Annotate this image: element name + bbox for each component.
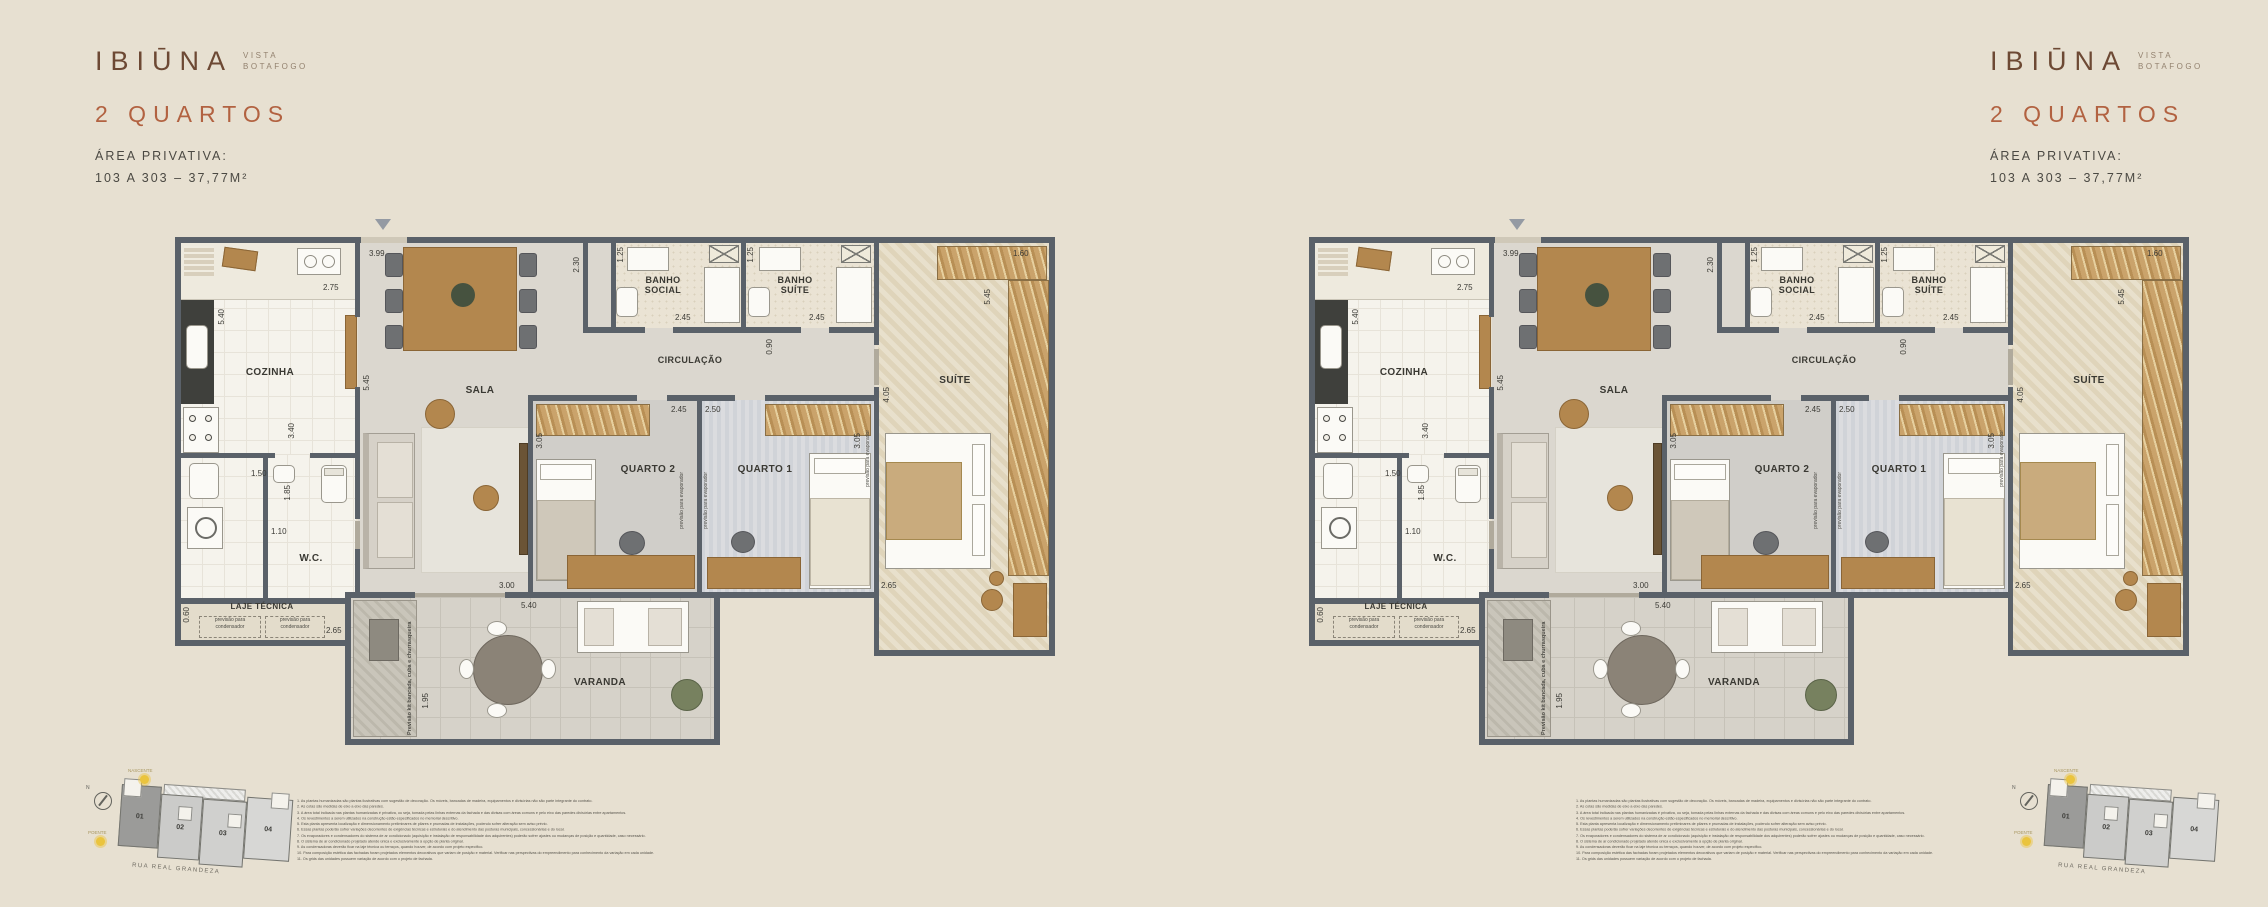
dining-chair — [1653, 325, 1671, 349]
suite-closet-top — [2071, 246, 2181, 280]
dim-var-w: 5.40 — [1655, 601, 1671, 610]
keymap-unit-03: 03 — [2125, 799, 2173, 868]
sofa-cushion — [377, 502, 413, 558]
dining-chair — [519, 289, 537, 313]
wall — [697, 401, 702, 592]
suite-dresser — [1013, 583, 1047, 637]
room-label-suite: SUÍTE — [2049, 375, 2129, 387]
wall — [355, 453, 360, 519]
dim-q1-top: 2.50 — [705, 405, 721, 414]
desk-chair — [731, 531, 755, 553]
ibiuna-logo: IBIŪNA — [1990, 46, 2128, 77]
room-label-banho-suite: BANHO SUÍTE — [769, 275, 821, 296]
dim-suite-h: 4.05 — [2016, 387, 2025, 403]
burner — [189, 434, 196, 441]
varanda-chair — [1621, 621, 1641, 636]
note-evaporador: previsão para evaporador — [679, 455, 691, 529]
burner — [1339, 415, 1346, 422]
dim-coz-top: 2.75 — [1457, 283, 1473, 292]
burner — [205, 434, 212, 441]
sun-top-label: NASCENTE — [128, 768, 153, 773]
sliding-door — [1549, 593, 1639, 597]
dim-coz-left: 5.40 — [217, 309, 226, 325]
varanda-chair — [1621, 703, 1641, 718]
dim-q2-side: 3.05 — [535, 433, 544, 449]
daybed — [577, 601, 689, 653]
pillow — [972, 504, 985, 556]
wardrobe — [536, 404, 650, 436]
toilet — [1750, 287, 1772, 317]
ventilation-shaft — [1843, 245, 1873, 263]
tv-console — [519, 443, 528, 555]
dim-hall: 2.30 — [572, 257, 581, 273]
dim-sala-bottom: 3.00 — [1633, 581, 1649, 590]
varanda-chair — [541, 659, 556, 679]
dim-closet-top: 1.60 — [2147, 249, 2163, 258]
dim-banho-suite-w: 1.25 — [1880, 247, 1889, 263]
dining-chair — [385, 253, 403, 277]
tv-console — [1653, 443, 1662, 555]
vanity — [1893, 247, 1935, 271]
room-label-suite: SUÍTE — [915, 375, 995, 387]
burner — [189, 415, 196, 422]
varanda-table — [1607, 635, 1677, 705]
keymap-unit-03: 03 — [199, 799, 247, 868]
brand-sub-line1: VISTA — [243, 51, 308, 62]
wall — [263, 458, 268, 598]
laundry-tank — [189, 463, 219, 499]
blanket — [886, 462, 962, 540]
wall — [714, 592, 720, 745]
wall — [351, 592, 415, 598]
pass-through-counter — [1479, 315, 1491, 389]
building-notch — [2197, 792, 2216, 809]
wall — [175, 237, 181, 646]
room-label-cozinha: COZINHA — [1349, 367, 1459, 379]
dining-chair — [1653, 289, 1671, 313]
room-label-banho-social: BANHO SOCIAL — [1771, 275, 1823, 296]
dim-circ: 0.90 — [1899, 339, 1908, 355]
ventilation-shaft — [841, 245, 871, 263]
wall — [874, 650, 1055, 656]
room-label-laje: LAJE TÉCNICA — [183, 602, 341, 611]
washer-drum — [1329, 517, 1351, 539]
brand-sub-line1: VISTA — [2138, 51, 2203, 62]
brand-sub-line2: BOTAFOGO — [2138, 62, 2203, 73]
dim-sala-top: 3.99 — [369, 249, 385, 258]
pillow — [1948, 458, 2000, 474]
suite-closet-top — [937, 246, 1047, 280]
bed-quarto1 — [809, 453, 871, 589]
dim-sala-bottom: 3.00 — [499, 581, 515, 590]
wall — [1489, 549, 1494, 598]
dim-laje-w: 2.65 — [326, 626, 342, 635]
room-label-laje: LAJE TÉCNICA — [1317, 602, 1475, 611]
pillow — [1674, 464, 1726, 480]
dim-banho-social-w: 1.25 — [616, 247, 625, 263]
compass-icon: N — [2020, 792, 2038, 810]
wall — [1717, 327, 1779, 333]
kitchen-sink-double — [297, 248, 341, 275]
room-label-cozinha: COZINHA — [215, 367, 325, 379]
wall — [583, 237, 588, 332]
brand: IBIŪNA VISTA BOTAFOGO — [1990, 46, 2203, 77]
wall — [765, 395, 879, 401]
wc-toilet — [1455, 465, 1481, 503]
wall — [1049, 237, 1055, 656]
brand-sub-line2: BOTAFOGO — [243, 62, 308, 73]
building-notch — [227, 813, 242, 828]
wall — [1479, 739, 1854, 745]
wc-toilet — [321, 465, 347, 503]
note-evaporador: previsão para evaporador — [703, 455, 715, 529]
dim-coz-bottom: 1.50 — [1385, 469, 1401, 478]
side-table — [425, 399, 455, 429]
dim-wc: 1.10 — [271, 527, 287, 536]
plan-type-title: 2 QUARTOS — [1990, 101, 2203, 128]
suite-closet-side — [2142, 280, 2183, 576]
wardrobe — [1670, 404, 1784, 436]
wall — [1717, 237, 1722, 332]
wall — [1309, 640, 1485, 646]
wall — [1309, 237, 1315, 646]
wall — [1479, 592, 1485, 745]
daybed-cushion — [1782, 608, 1816, 646]
wall — [1444, 453, 1490, 458]
area-label: ÁREA PRIVATIVA: — [95, 146, 308, 168]
wall — [1662, 395, 1667, 598]
note-kit-bancada: Previsão kit bancada, cuba e churrasquei… — [407, 625, 421, 735]
shower — [704, 267, 740, 323]
wall — [1489, 237, 1494, 317]
pass-through-counter — [345, 315, 357, 389]
desk — [1701, 555, 1829, 589]
plan-type-title: 2 QUARTOS — [95, 101, 308, 128]
sink-bowl — [322, 255, 335, 268]
sun-top-label: NASCENTE — [2054, 768, 2079, 773]
wc-sink — [1407, 465, 1429, 483]
varanda-table — [473, 635, 543, 705]
dim-coz-door: 1.85 — [283, 485, 292, 501]
wall — [2008, 237, 2013, 345]
varanda-chair — [1593, 659, 1608, 679]
wall — [1485, 592, 1549, 598]
varanda-chair — [487, 703, 507, 718]
wall — [1662, 592, 2013, 598]
wall — [2183, 237, 2189, 656]
dining-chair — [519, 325, 537, 349]
door-opening — [355, 521, 360, 549]
dim-wc: 1.10 — [1405, 527, 1421, 536]
shower — [836, 267, 872, 323]
wall — [528, 395, 533, 598]
note-condensador: previsão para condensador — [265, 616, 325, 638]
toilet — [748, 287, 770, 317]
brochure-page: IBIŪNA VISTA BOTAFOGO 2 QUARTOS ÁREA PRI… — [0, 0, 2268, 907]
blanket — [2020, 462, 2096, 540]
wall — [310, 453, 356, 458]
desk — [707, 557, 801, 589]
wall — [355, 387, 360, 453]
dim-sala-left: 5.45 — [1496, 375, 1505, 391]
building-footprint: 01 02 03 04 — [116, 784, 297, 876]
pillow — [2106, 504, 2119, 556]
wall — [1662, 395, 1771, 401]
dim-var-h: 1.95 — [421, 693, 430, 709]
area-label: ÁREA PRIVATIVA: — [1990, 146, 2203, 168]
wall — [1807, 327, 1935, 333]
wall — [175, 453, 275, 458]
dim-banho-suite-b: 2.45 — [809, 313, 825, 322]
sun-icon — [2022, 837, 2031, 846]
wall — [1899, 395, 2013, 401]
key-map: N NASCENTE POENTE 01 02 03 04 RUA REAL G… — [2014, 768, 2249, 886]
side-table — [1559, 399, 1589, 429]
floor-plan: COZINHA SALA BANHO SOCIAL BANHO SUÍTE CI… — [1309, 237, 2189, 745]
sofa — [1497, 433, 1549, 569]
room-label-quarto1: QUARTO 1 — [725, 464, 805, 476]
dim-coz-door: 1.85 — [1417, 485, 1426, 501]
wall — [345, 739, 720, 745]
dim-laje-h: 0.60 — [182, 607, 191, 623]
toilet-tank — [324, 468, 344, 476]
dim-sala-top: 3.99 — [1503, 249, 1519, 258]
dim-q2-top: 2.45 — [1805, 405, 1821, 414]
room-label-varanda: VARANDA — [1679, 677, 1789, 689]
dim-sala-left: 5.45 — [362, 375, 371, 391]
dining-chair — [1519, 325, 1537, 349]
dining-chair — [1519, 253, 1537, 277]
note-condensador: previsão para condensador — [1399, 616, 1459, 638]
key-map: N NASCENTE POENTE 01 02 03 04 RUA REAL G… — [88, 768, 323, 886]
note-condensador: previsão para condensador — [1333, 616, 1395, 638]
sofa-cushion — [377, 442, 413, 498]
building-notch — [178, 806, 193, 821]
compass-needle — [2024, 795, 2034, 806]
laundry-tank — [1323, 463, 1353, 499]
wall — [583, 327, 645, 333]
daybed-cushion — [648, 608, 682, 646]
varanda-chair — [487, 621, 507, 636]
wall — [528, 592, 879, 598]
blanket — [1944, 498, 2004, 586]
dim-suite-b: 2.65 — [2015, 581, 2031, 590]
dim-coz-bottom: 1.50 — [251, 469, 267, 478]
compass-n-label: N — [86, 785, 90, 791]
table-plant — [451, 283, 475, 307]
toilet — [1882, 287, 1904, 317]
note-evaporador: previsão para evaporador — [865, 413, 877, 487]
bed-suite — [885, 433, 991, 569]
dim-coz-top: 2.75 — [323, 283, 339, 292]
floor-hall — [1718, 242, 1746, 328]
note-evaporador: previsão para evaporador — [1813, 455, 1825, 529]
sliding-door — [415, 593, 505, 597]
room-label-quarto1: QUARTO 1 — [1859, 464, 1939, 476]
note-evaporador: previsão para evaporador — [1837, 455, 1849, 529]
note-kit-bancada: Previsão kit bancada, cuba e churrasquei… — [1541, 625, 1555, 735]
wall — [355, 237, 360, 317]
burner — [1339, 434, 1346, 441]
burner — [1323, 415, 1330, 422]
dim-banho-social-w: 1.25 — [1750, 247, 1759, 263]
dim-q1-side: 3.05 — [1987, 433, 1996, 449]
stove — [183, 407, 219, 453]
washing-machine — [187, 507, 223, 549]
sink-bowl — [1456, 255, 1469, 268]
washing-machine — [1321, 507, 1357, 549]
disclaimer: 1. As plantas humanizadas são plantas il… — [1576, 799, 1933, 862]
note-condensador: previsão para condensador — [199, 616, 261, 638]
shower — [1970, 267, 2006, 323]
wall — [874, 237, 879, 345]
daybed-cushion — [1718, 608, 1748, 646]
wall — [1831, 401, 1836, 592]
table-plant — [1585, 283, 1609, 307]
dim-coz-right: 3.40 — [1421, 423, 1430, 439]
wall — [345, 592, 351, 745]
wall — [355, 549, 360, 598]
building-notch — [271, 792, 290, 809]
floorplan-panel: IBIŪNA VISTA BOTAFOGO 2 QUARTOS ÁREA PRI… — [0, 0, 1134, 907]
keymap-unit-02: 02 — [157, 794, 203, 861]
brand-subtitle: VISTA BOTAFOGO — [2138, 51, 2203, 73]
sofa-cushion — [1511, 502, 1547, 558]
dim-q2-top: 2.45 — [671, 405, 687, 414]
disclaimer-line: 11. Os grids das unidades possuem variaç… — [297, 857, 654, 863]
pouf — [989, 571, 1004, 586]
dining-chair — [519, 253, 537, 277]
compass-icon: N — [94, 792, 112, 810]
pillow — [814, 458, 866, 474]
private-area-block: ÁREA PRIVATIVA: 103 A 303 – 37,77M² — [1990, 146, 2203, 190]
wc-sink — [273, 465, 295, 483]
room-label-wc: W.C. — [1405, 553, 1485, 565]
room-label-circulacao: CIRCULAÇÃO — [1739, 355, 1909, 365]
pillow — [2106, 444, 2119, 496]
dining-chair — [385, 325, 403, 349]
panel-header: IBIŪNA VISTA BOTAFOGO 2 QUARTOS ÁREA PRI… — [1990, 46, 2203, 190]
wall — [829, 327, 879, 333]
shower — [1838, 267, 1874, 323]
vanity — [627, 247, 669, 271]
sink-bowl — [304, 255, 317, 268]
dim-circ: 0.90 — [765, 339, 774, 355]
pouf — [2123, 571, 2138, 586]
compass-needle — [98, 795, 108, 806]
dim-banho-social-b: 2.45 — [1809, 313, 1825, 322]
wardrobe — [1899, 404, 2005, 436]
area-value: 103 A 303 – 37,77M² — [95, 168, 308, 190]
sun-left-label: POENTE — [2014, 830, 2033, 835]
dim-suite-b: 2.65 — [881, 581, 897, 590]
brand: IBIŪNA VISTA BOTAFOGO — [95, 46, 308, 77]
entry-door — [361, 237, 407, 243]
burner — [205, 415, 212, 422]
dim-banho-suite-b: 2.45 — [1943, 313, 1959, 322]
dim-hall: 2.30 — [1706, 257, 1715, 273]
room-label-wc: W.C. — [271, 553, 351, 565]
note-evaporador: previsão para evaporador — [1999, 413, 2011, 487]
toilet — [616, 287, 638, 317]
brand-subtitle: VISTA BOTAFOGO — [243, 51, 308, 73]
bed-quarto1 — [1943, 453, 2005, 589]
desk-chair — [619, 531, 645, 555]
plant — [1805, 679, 1837, 711]
wall — [505, 592, 528, 598]
keymap-unit-02: 02 — [2083, 794, 2129, 861]
floorplan-panel: IBIŪNA VISTA BOTAFOGO 2 QUARTOS ÁREA PRI… — [1134, 0, 2268, 907]
burner — [1323, 434, 1330, 441]
dim-banho-suite-w: 1.25 — [746, 247, 755, 263]
room-label-sala: SALA — [445, 385, 515, 397]
dim-q1-side: 3.05 — [853, 433, 862, 449]
varanda-chair — [1675, 659, 1690, 679]
dim-suite-h: 4.05 — [882, 387, 891, 403]
washer-drum — [195, 517, 217, 539]
compass-n-label: N — [2012, 785, 2016, 791]
varanda-sink — [1503, 619, 1533, 661]
coffee-table — [1607, 485, 1633, 511]
daybed-cushion — [584, 608, 614, 646]
building-notch — [2104, 806, 2119, 821]
entry-arrow-icon — [1509, 219, 1525, 230]
disclaimer: 1. As plantas humanizadas são plantas il… — [297, 799, 654, 862]
door-opening — [874, 349, 879, 385]
area-value: 103 A 303 – 37,77M² — [1990, 168, 2203, 190]
wall — [528, 395, 637, 401]
kitchen-sink — [1320, 325, 1342, 369]
kitchen-sink-double — [1431, 248, 1475, 275]
door-opening — [1489, 521, 1494, 549]
kitchen-sink — [186, 325, 208, 369]
wall — [1489, 453, 1494, 519]
varanda-sink — [369, 619, 399, 661]
wall — [2008, 650, 2189, 656]
private-area-block: ÁREA PRIVATIVA: 103 A 303 – 37,77M² — [95, 146, 308, 190]
dim-coz-right: 3.40 — [287, 423, 296, 439]
pillow — [972, 444, 985, 496]
building-footprint: 01 02 03 04 — [2042, 784, 2223, 876]
dim-laje-h: 0.60 — [1316, 607, 1325, 623]
kitchen-mosaic — [1318, 246, 1348, 276]
wardrobe — [765, 404, 871, 436]
room-label-banho-suite: BANHO SUÍTE — [1903, 275, 1955, 296]
floor-plan: COZINHA SALA BANHO SOCIAL BANHO SUÍTE CI… — [175, 237, 1055, 745]
suite-closet-side — [1008, 280, 1049, 576]
sink-bowl — [1438, 255, 1451, 268]
wall — [1848, 592, 1854, 745]
door-opening — [2008, 349, 2013, 385]
dim-var-h: 1.95 — [1555, 693, 1564, 709]
sun-icon — [96, 837, 105, 846]
dim-laje-w: 2.65 — [1460, 626, 1476, 635]
suite-dresser — [2147, 583, 2181, 637]
wall — [1963, 327, 2013, 333]
ventilation-shaft — [1975, 245, 2005, 263]
dim-q1-top: 2.50 — [1839, 405, 1855, 414]
floor-hall — [584, 242, 612, 328]
dim-closet-side: 5.45 — [2117, 289, 2126, 305]
pouf — [981, 589, 1003, 611]
dining-chair — [1519, 289, 1537, 313]
coffee-table — [473, 485, 499, 511]
ibiuna-logo: IBIŪNA — [95, 46, 233, 77]
dining-chair — [385, 289, 403, 313]
blanket — [810, 498, 870, 586]
wall — [1489, 387, 1494, 453]
varanda-chair — [459, 659, 474, 679]
